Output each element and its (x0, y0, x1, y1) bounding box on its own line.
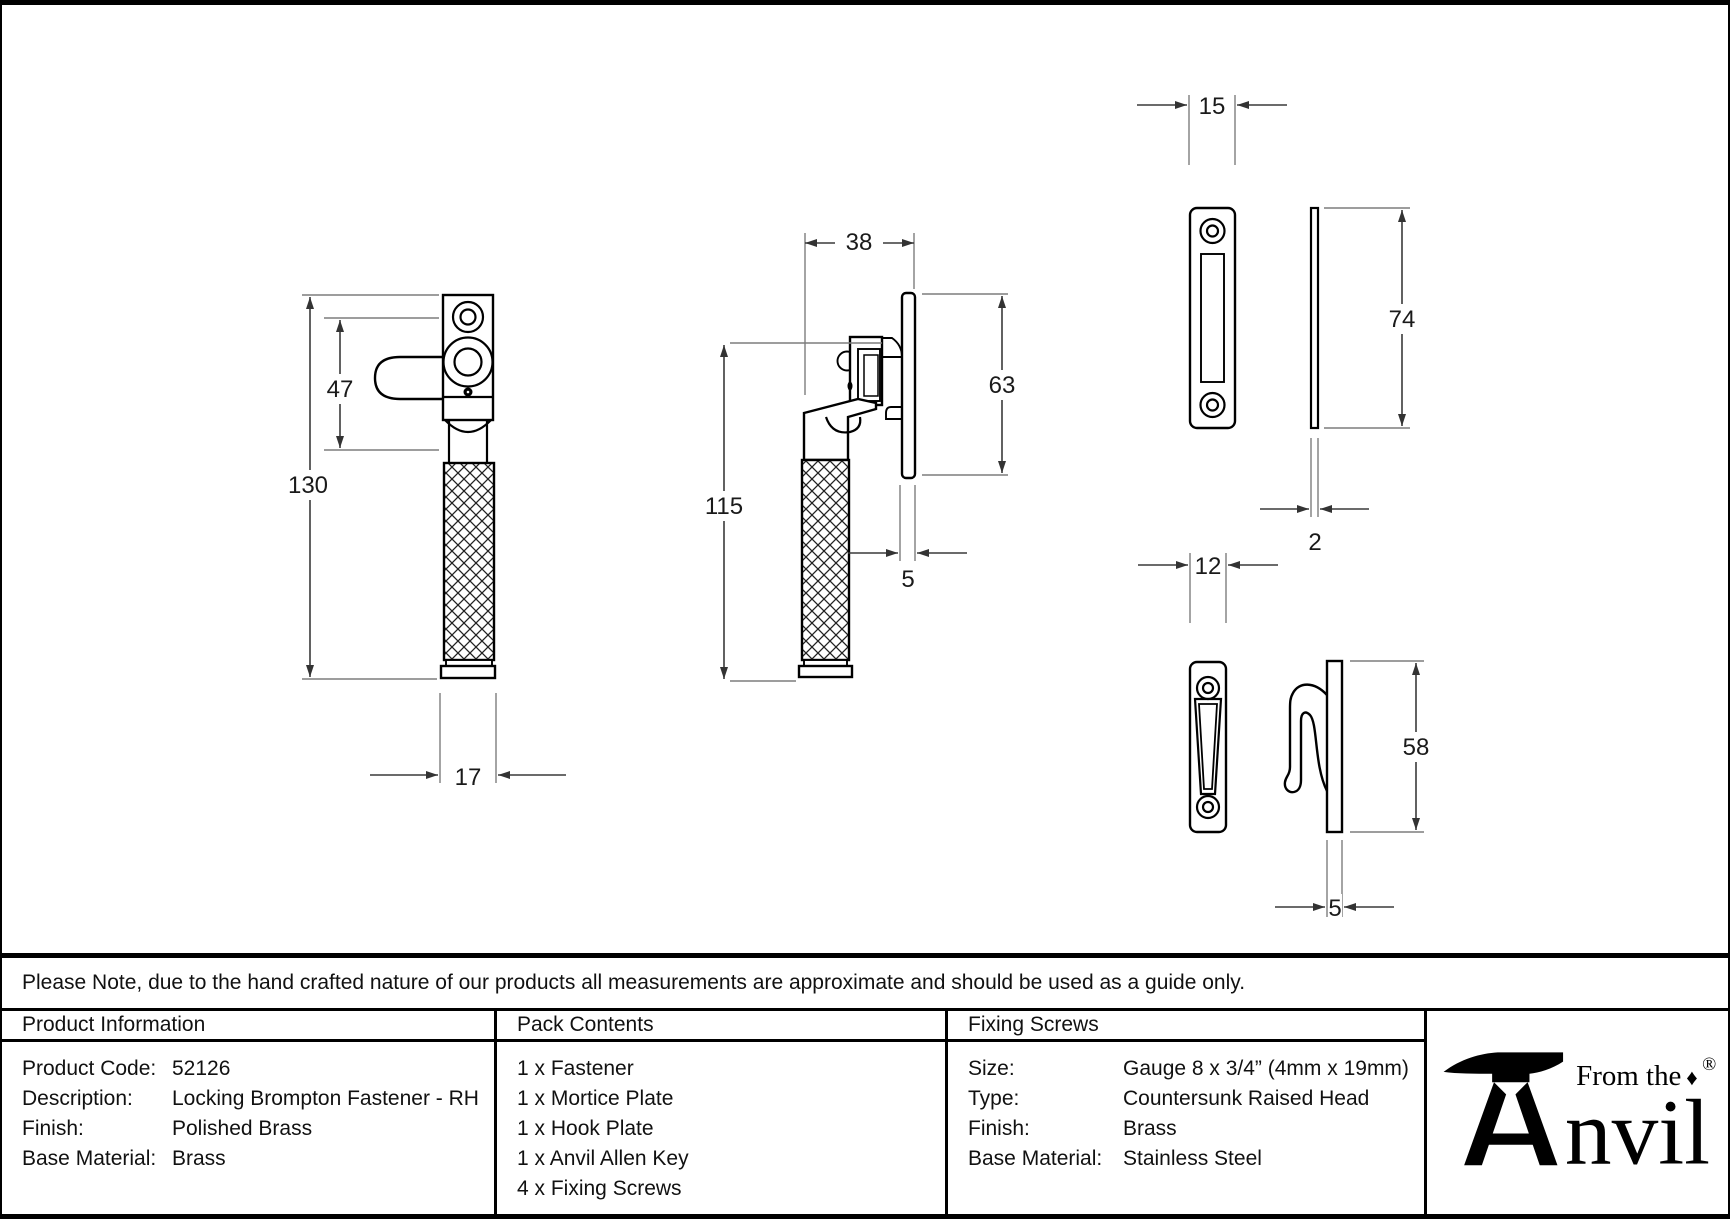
list-item: 1 x Anvil Allen Key (517, 1144, 945, 1174)
row-label: Product Code: (22, 1054, 172, 1084)
svg-text:5: 5 (901, 566, 914, 593)
svg-text:58: 58 (1403, 734, 1430, 761)
table-row: Base Material: Stainless Steel (968, 1144, 1424, 1174)
row-label: Finish: (968, 1114, 1123, 1144)
dimension-mortice-width: 15 (1137, 93, 1287, 165)
anvil-a-glyph (1443, 1052, 1562, 1165)
fastener-front-view: 130 47 17 (281, 295, 566, 791)
svg-text:74: 74 (1389, 306, 1416, 333)
collar-arc (445, 420, 491, 432)
svg-text:17: 17 (455, 764, 482, 791)
pack-contents-title: Pack Contents (517, 1013, 654, 1037)
mortice-plate-edge (1311, 208, 1318, 428)
fastener-backplate-front (443, 295, 493, 420)
svg-text:5: 5 (1328, 895, 1341, 922)
hook-plate (1190, 662, 1226, 832)
dimension-mortice-height: 74 (1324, 208, 1425, 428)
hook-plate-front-view: 12 (1138, 553, 1278, 832)
svg-text:63: 63 (989, 372, 1016, 399)
svg-text:2: 2 (1308, 529, 1321, 556)
fixing-screws-header: Fixing Screws (945, 1011, 1424, 1042)
row-value: Brass (1123, 1114, 1177, 1144)
plate-flange (886, 407, 902, 419)
product-information-body: Product Code: 52126 Description: Locking… (2, 1042, 494, 1214)
mortice-plate-side-view: 74 2 (1260, 208, 1425, 556)
pack-contents-header: Pack Contents (494, 1011, 945, 1042)
svg-text:115: 115 (705, 493, 743, 520)
sheet-frame: 130 47 17 (0, 0, 1730, 1219)
dimension-overall-height: 130 (281, 295, 439, 679)
row-label: Description: (22, 1084, 172, 1114)
registered-trademark-icon: ® (1702, 1054, 1716, 1075)
product-information-header: Product Information (2, 1011, 494, 1042)
pack-contents-body: 1 x Fastener 1 x Mortice Plate 1 x Hook … (494, 1042, 945, 1214)
svg-text:15: 15 (1199, 93, 1226, 120)
row-value: Brass (172, 1144, 226, 1174)
dimension-handle-width: 17 (370, 693, 566, 791)
grip-end-cap (441, 666, 495, 678)
mortice-slot (1201, 254, 1224, 382)
fixing-screws-title: Fixing Screws (968, 1013, 1099, 1037)
table-row: Description: Locking Brompton Fastener -… (22, 1084, 494, 1114)
row-value: Stainless Steel (1123, 1144, 1262, 1174)
svg-text:47: 47 (327, 376, 354, 403)
row-label: Size: (968, 1054, 1123, 1084)
svg-text:130: 130 (288, 472, 328, 499)
hook-plate-edge (1327, 661, 1342, 832)
row-label: Finish: (22, 1114, 172, 1144)
fastener-nose (375, 357, 449, 399)
housing-rear (880, 338, 902, 357)
mortice-plate-front-view: 15 (1137, 93, 1287, 428)
row-label: Type: (968, 1084, 1123, 1114)
dimension-mortice-thickness: 2 (1260, 438, 1369, 556)
row-value: 52126 (172, 1054, 230, 1084)
allen-key-hole-center (467, 391, 470, 394)
handle-neck-front (449, 420, 487, 463)
list-item: 1 x Hook Plate (517, 1114, 945, 1144)
latch-arm-side (804, 399, 876, 460)
logo-tagline: From the (1576, 1060, 1681, 1092)
logo-wordmark-tail: nvil (1564, 1081, 1709, 1184)
dimension-plate-thickness: 5 (848, 485, 967, 593)
list-item: 4 x Fixing Screws (517, 1174, 945, 1204)
measurement-note: Please Note, due to the hand crafted nat… (22, 971, 1245, 994)
row-value: Gauge 8 x 3/4” (4mm x 19mm) (1123, 1054, 1409, 1084)
row-value: Countersunk Raised Head (1123, 1084, 1369, 1114)
keep-housing-innermost (864, 355, 878, 396)
product-spec-sheet: 130 47 17 (0, 0, 1730, 1226)
dimension-plate-height: 63 (922, 294, 1025, 475)
grub-screw-dot (848, 382, 853, 391)
measurement-note-row: Please Note, due to the hand crafted nat… (2, 953, 1728, 1011)
knurled-grip-front (444, 463, 494, 660)
table-row: Product Code: 52126 (22, 1054, 494, 1084)
product-info-table: Product Information Pack Contents Fixing… (2, 1011, 1728, 1214)
knurled-grip-side (802, 460, 849, 660)
anvil-logo: nvil From the ♦ ® (1438, 1034, 1718, 1192)
table-row: Size: Gauge 8 x 3/4” (4mm x 19mm) (968, 1054, 1424, 1084)
dimension-hook-height: 58 (1350, 661, 1439, 832)
row-label: Base Material: (968, 1144, 1123, 1174)
fixing-screws-body: Size: Gauge 8 x 3/4” (4mm x 19mm) Type: … (945, 1042, 1424, 1214)
hook-plate-side-view: 58 5 (1275, 661, 1439, 922)
hook-inner-curve (1301, 713, 1327, 791)
dimension-hook-width: 12 (1138, 553, 1278, 623)
list-item: 1 x Mortice Plate (517, 1084, 945, 1114)
row-value: Polished Brass (172, 1114, 312, 1144)
list-item: 1 x Fastener (517, 1054, 945, 1084)
product-information-title: Product Information (22, 1013, 205, 1037)
table-row: Type: Countersunk Raised Head (968, 1084, 1424, 1114)
svg-text:12: 12 (1195, 553, 1222, 580)
technical-drawings: 130 47 17 (2, 5, 1728, 953)
table-row: Finish: Polished Brass (22, 1114, 494, 1144)
row-label: Base Material: (22, 1144, 172, 1174)
logo-diamond-icon: ♦ (1686, 1065, 1697, 1090)
fastener-backplate-side (902, 293, 915, 478)
drawings-svg: 130 47 17 (2, 5, 1730, 953)
table-row: Finish: Brass (968, 1114, 1424, 1144)
table-row: Base Material: Brass (22, 1144, 494, 1174)
grip-end-cap-side (799, 666, 852, 677)
fastener-side-view: 38 115 5 63 (694, 227, 1025, 681)
svg-text:38: 38 (846, 229, 873, 256)
row-value: Locking Brompton Fastener - RH (172, 1084, 479, 1114)
brand-logo-cell: nvil From the ♦ ® (1424, 1011, 1728, 1214)
dimension-hook-thickness: 5 (1275, 840, 1394, 922)
